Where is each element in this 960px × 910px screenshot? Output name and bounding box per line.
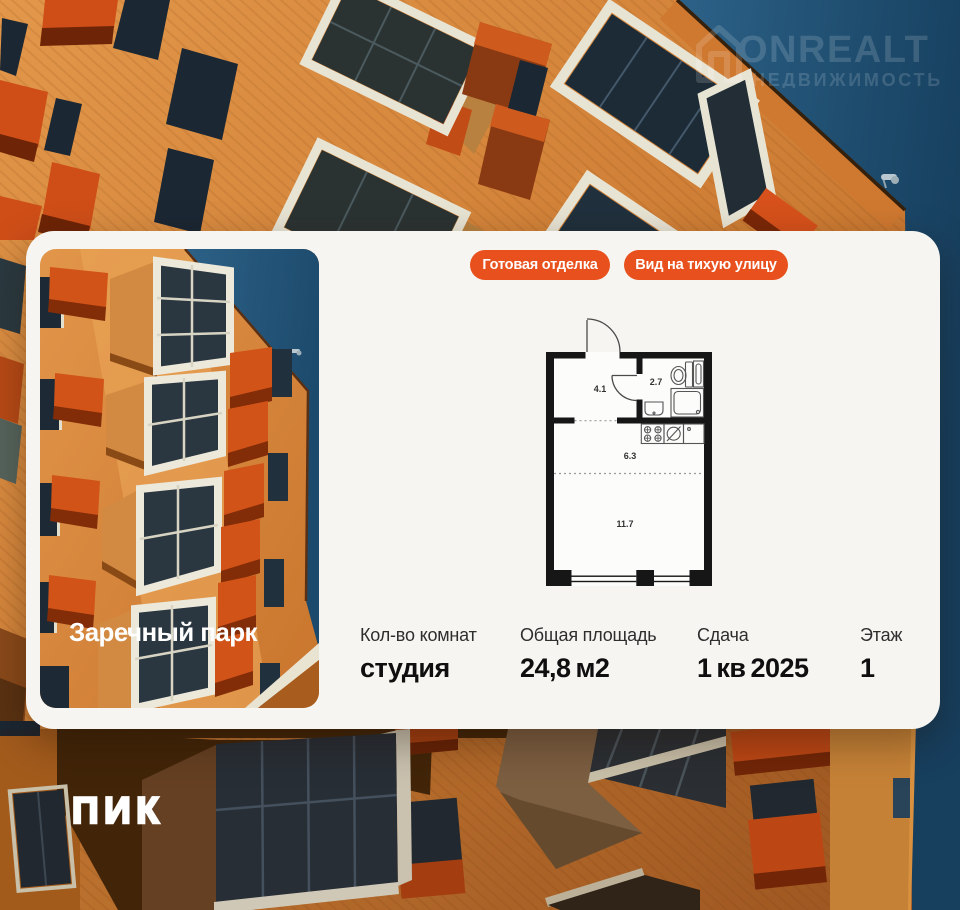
svg-text:ONREALT: ONREALT xyxy=(738,29,929,71)
svg-text:6.3: 6.3 xyxy=(624,451,637,461)
svg-text:ПИК: ПИК xyxy=(72,790,164,831)
svg-text:НЕДВИЖИМОСТЬ: НЕДВИЖИМОСТЬ xyxy=(752,70,943,88)
svg-text:11.7: 11.7 xyxy=(616,519,633,529)
svg-text:4.1: 4.1 xyxy=(594,384,607,394)
svg-text:2.7: 2.7 xyxy=(650,377,663,387)
